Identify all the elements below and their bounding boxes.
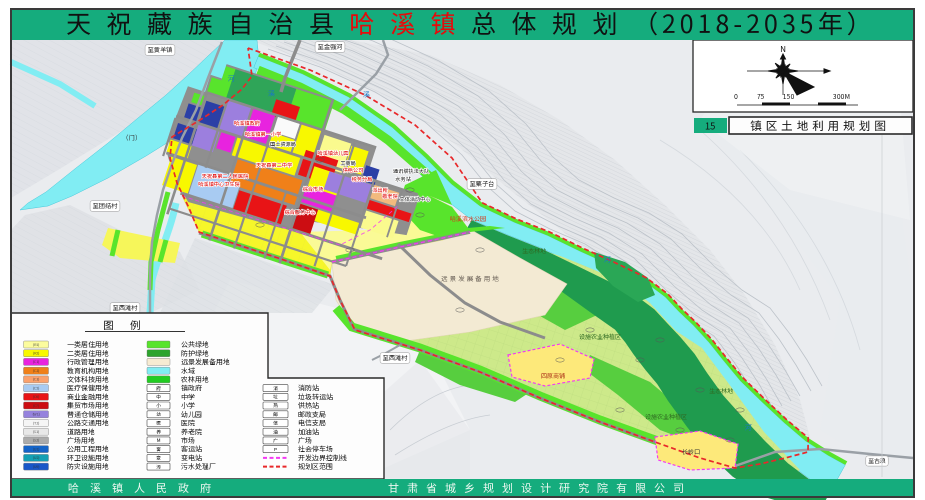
svg-text:客: 客 (156, 446, 161, 453)
svg-text:河: 河 (744, 423, 752, 433)
svg-text:(T2): (T2) (33, 421, 40, 426)
svg-text:设施农业种植区: 设施农业种植区 (579, 332, 621, 341)
svg-text:(S2): (S2) (33, 439, 40, 444)
svg-text:油: 油 (272, 429, 278, 435)
svg-text:M: M (157, 438, 161, 444)
svg-text:图例: 图例 (104, 318, 157, 333)
svg-text:远景发展备用地: 远景发展备用地 (441, 273, 501, 283)
svg-text:中: 中 (156, 395, 161, 401)
svg-text:(S1): (S1) (33, 430, 40, 435)
svg-text:邮: 邮 (273, 411, 278, 418)
svg-text:P: P (274, 447, 277, 453)
svg-text:(C7): (C7) (33, 404, 40, 409)
svg-text:(R2): (R2) (33, 352, 40, 357)
svg-text:溪: 溪 (363, 90, 370, 100)
svg-text:75: 75 (757, 91, 765, 101)
svg-text:天祝县第二人民医院: 天祝县第二人民医院 (202, 173, 249, 180)
svg-text:信: 信 (272, 421, 278, 427)
svg-text:税务分局: 税务分局 (352, 176, 373, 183)
svg-text:至团结村: 至团结村 (93, 201, 119, 210)
svg-text:工商局: 工商局 (340, 160, 356, 167)
svg-text:小: 小 (156, 403, 161, 409)
svg-text:长岭口: 长岭口 (682, 447, 700, 456)
svg-text:(C3): (C3) (33, 378, 40, 383)
svg-text:河: 河 (227, 74, 235, 84)
svg-text:150: 150 (783, 91, 795, 101)
svg-text:哈溪镇政府: 哈溪镇政府 (234, 120, 261, 127)
svg-text:(U2): (U2) (32, 456, 39, 461)
svg-text:(U9): (U9) (32, 465, 39, 470)
svg-text:医: 医 (156, 421, 161, 427)
svg-text:综合市场: 综合市场 (303, 186, 325, 193)
svg-text:幼: 幼 (156, 412, 161, 418)
svg-text:哈溪镇幼儿园: 哈溪镇幼儿园 (317, 150, 348, 157)
svg-text:至西滩村: 至西滩村 (383, 353, 409, 362)
svg-text:(C5): (C5) (33, 386, 40, 391)
svg-text:通讯塔执法大队: 通讯塔执法大队 (393, 167, 430, 175)
svg-text:哈溪镇人民政府: 哈溪镇人民政府 (68, 480, 222, 496)
svg-text:设施农业种植区: 设施农业种植区 (645, 412, 687, 421)
svg-text:消: 消 (273, 386, 278, 392)
svg-text:300M: 300M (832, 91, 850, 101)
svg-text:(R1): (R1) (33, 343, 40, 348)
svg-text:至古浪: 至古浪 (868, 456, 886, 465)
svg-text:综合服务中心: 综合服务中心 (284, 209, 315, 216)
svg-text:(C2): (C2) (33, 369, 40, 374)
svg-text:水务站: 水务站 (395, 176, 411, 183)
svg-text:(U1): (U1) (32, 447, 39, 452)
svg-text:(C1): (C1) (33, 360, 40, 365)
svg-text:河: 河 (603, 255, 611, 265)
svg-text:天祝藏族自治县哈溪镇总体规划（2018-2035年）: 天祝藏族自治县哈溪镇总体规划（2018-2035年） (66, 5, 876, 41)
svg-text:至西滩村: 至西滩村 (113, 303, 139, 312)
svg-text:镇区土地利用规划图: 镇区土地利用规划图 (750, 118, 890, 134)
svg-text:热: 热 (273, 403, 278, 409)
svg-text:广: 广 (272, 438, 278, 444)
svg-text:生态林地: 生态林地 (709, 386, 734, 395)
svg-text:至金强河: 至金强河 (318, 42, 344, 51)
svg-text:敬老院: 敬老院 (382, 193, 398, 200)
svg-text:至黄羊镇: 至黄羊镇 (148, 45, 174, 54)
svg-text:哈溪镇中心卫生院: 哈溪镇中心卫生院 (198, 181, 240, 188)
svg-text:（门）: （门） (122, 132, 142, 142)
svg-text:变: 变 (156, 455, 161, 462)
svg-text:垃: 垃 (272, 394, 278, 401)
svg-text:甘肃省城乡规划设计研究院有限公司: 甘肃省城乡规划设计研究院有限公司 (388, 480, 692, 496)
svg-text:天祝县第二中学: 天祝县第二中学 (256, 162, 293, 169)
svg-text:规划区范围: 规划区范围 (298, 462, 333, 472)
svg-text:哈溪滨水公园: 哈溪滨水公园 (450, 214, 486, 223)
svg-text:文体活动中心: 文体活动中心 (399, 196, 430, 203)
svg-text:至粟子台: 至粟子台 (470, 179, 495, 188)
svg-text:国土资源局: 国土资源局 (270, 141, 296, 148)
svg-text:养: 养 (155, 428, 161, 435)
svg-text:0: 0 (734, 91, 738, 101)
svg-text:府: 府 (155, 385, 161, 392)
svg-text:防灾设施用地: 防灾设施用地 (67, 462, 110, 472)
svg-text:供电公司: 供电公司 (343, 167, 364, 174)
svg-text:(W1): (W1) (32, 413, 40, 418)
svg-text:污水处理厂: 污水处理厂 (181, 462, 216, 472)
svg-text:四原商铺: 四原商铺 (541, 371, 565, 380)
svg-text:15: 15 (705, 119, 716, 133)
svg-text:污: 污 (155, 463, 161, 470)
svg-text:生态林地: 生态林地 (522, 246, 547, 255)
svg-text:(C6): (C6) (33, 395, 40, 400)
svg-text:哈溪镇第一小学: 哈溪镇第一小学 (245, 131, 282, 138)
svg-text:溪: 溪 (268, 89, 275, 99)
